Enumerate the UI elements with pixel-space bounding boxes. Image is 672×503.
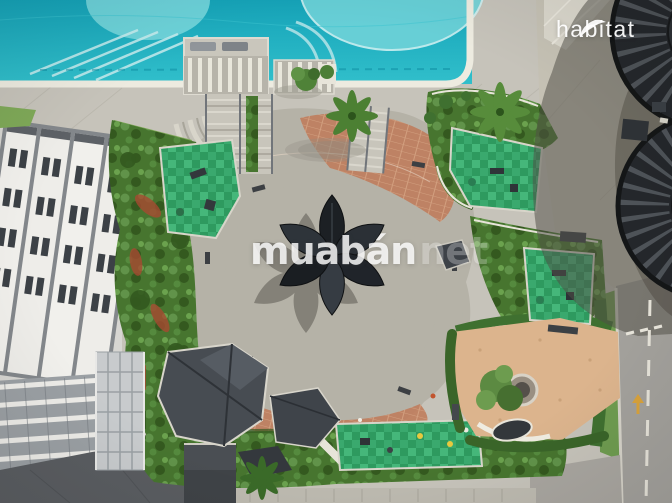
muaban-watermark: muabánnet xyxy=(250,229,487,273)
habitat-logo: habitat xyxy=(556,18,636,41)
muaban-watermark-text: muabán xyxy=(250,229,416,273)
aerial-photo: muabánnet habitat xyxy=(0,0,672,503)
leaf-icon xyxy=(578,18,608,38)
muaban-watermark-suffix: net xyxy=(419,229,487,273)
